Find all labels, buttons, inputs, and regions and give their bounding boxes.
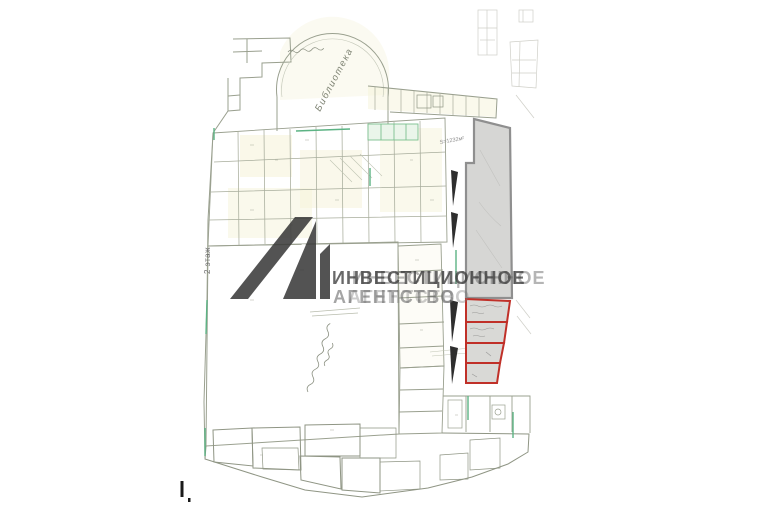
bottom-right-band bbox=[443, 396, 530, 433]
scanned-floor-plan-page: Библиотека 2 этаж S=1232м² ИНВЕСТИЦИОННО… bbox=[0, 0, 770, 510]
floor-label: 2 этаж bbox=[203, 247, 212, 274]
room-fills bbox=[228, 17, 497, 368]
bottom-room-cluster bbox=[205, 424, 529, 497]
reference-ticks bbox=[181, 481, 191, 502]
parcel-area-label: S=1232м² bbox=[439, 136, 465, 146]
red-unit-3 bbox=[466, 343, 504, 363]
floor-plan-drawing: Библиотека 2 этаж S=1232м² bbox=[0, 0, 770, 510]
red-unit-4 bbox=[466, 363, 500, 383]
red-unit-1 bbox=[466, 299, 510, 322]
highlighted-rooms-green bbox=[368, 124, 418, 140]
hall-dimension-marks bbox=[310, 308, 360, 316]
stair-wedges bbox=[450, 170, 458, 384]
gray-parcel bbox=[466, 119, 512, 298]
handwritten-note-hall bbox=[306, 323, 339, 395]
red-outlined-units bbox=[466, 299, 510, 383]
red-unit-2 bbox=[466, 322, 507, 343]
